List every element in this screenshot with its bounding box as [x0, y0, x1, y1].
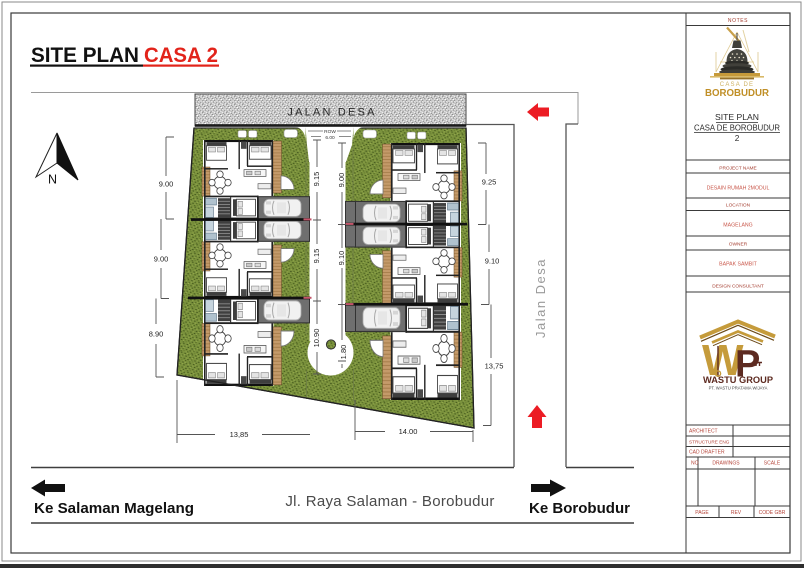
svg-text:CASA 2: CASA 2: [144, 43, 218, 67]
svg-text:N: N: [48, 173, 57, 187]
svg-text:9.10: 9.10: [485, 257, 500, 266]
svg-text:ARCHITECT: ARCHITECT: [689, 429, 718, 435]
svg-text:Jalan Desa: Jalan Desa: [533, 258, 548, 338]
svg-text:CASA DE BOROBUDUR: CASA DE BOROBUDUR: [694, 123, 780, 133]
svg-text:NOTES: NOTES: [728, 18, 748, 24]
svg-text:CODE GBR: CODE GBR: [759, 510, 786, 516]
svg-text:9.10: 9.10: [337, 251, 346, 266]
svg-text:Jl. Raya Salaman - Borobudur: Jl. Raya Salaman - Borobudur: [285, 493, 494, 510]
svg-text:DESIGN CONSULTANT: DESIGN CONSULTANT: [712, 284, 764, 290]
svg-text:2: 2: [735, 133, 740, 143]
svg-text:MAGELANG: MAGELANG: [723, 223, 752, 229]
svg-text:9.15: 9.15: [312, 249, 321, 264]
svg-text:1.80: 1.80: [339, 345, 348, 360]
svg-text:DRAWINGS: DRAWINGS: [712, 461, 740, 467]
svg-text:PAGE: PAGE: [695, 510, 709, 516]
svg-text:13,85: 13,85: [230, 430, 249, 439]
svg-text:9.00: 9.00: [154, 255, 169, 264]
svg-text:SCALE: SCALE: [764, 461, 781, 467]
svg-text:LOCATION: LOCATION: [726, 203, 751, 209]
svg-text:10.90: 10.90: [312, 329, 321, 348]
svg-text:DESAIN RUMAH 2MODUL: DESAIN RUMAH 2MODUL: [707, 186, 770, 192]
svg-text:ROW: ROW: [324, 129, 336, 135]
svg-text:6.00: 6.00: [325, 135, 335, 141]
svg-text:13,75: 13,75: [485, 362, 504, 371]
svg-text:14.00: 14.00: [399, 427, 418, 436]
svg-text:8.90: 8.90: [149, 330, 164, 339]
svg-text:9.00: 9.00: [337, 173, 346, 188]
svg-text:NO: NO: [691, 461, 699, 467]
svg-text:Ke Salaman Magelang: Ke Salaman Magelang: [34, 501, 194, 517]
svg-text:STRUCTURE ENG: STRUCTURE ENG: [689, 440, 730, 445]
svg-text:SITE PLAN: SITE PLAN: [715, 112, 759, 122]
svg-text:9.15: 9.15: [312, 172, 321, 187]
svg-text:BOROBUDUR: BOROBUDUR: [705, 87, 769, 99]
svg-text:OWNER: OWNER: [729, 242, 748, 248]
svg-text:9.00: 9.00: [159, 180, 174, 189]
svg-text:SITE PLAN: SITE PLAN: [31, 43, 139, 67]
svg-text:CAD DRAFTER: CAD DRAFTER: [689, 450, 725, 456]
svg-text:PROJECT NAME: PROJECT NAME: [719, 166, 757, 172]
svg-text:WASTU GROUP: WASTU GROUP: [703, 375, 774, 386]
svg-text:REV: REV: [731, 510, 742, 516]
svg-text:BAPAK SAMBIT: BAPAK SAMBIT: [719, 262, 757, 268]
svg-text:9.25: 9.25: [482, 178, 497, 187]
svg-text:JALAN DESA: JALAN DESA: [287, 107, 376, 119]
svg-text:Ke Borobudur: Ke Borobudur: [529, 501, 630, 517]
svg-text:PT. WASTU PRATAMA WIJAYA: PT. WASTU PRATAMA WIJAYA: [709, 386, 768, 391]
